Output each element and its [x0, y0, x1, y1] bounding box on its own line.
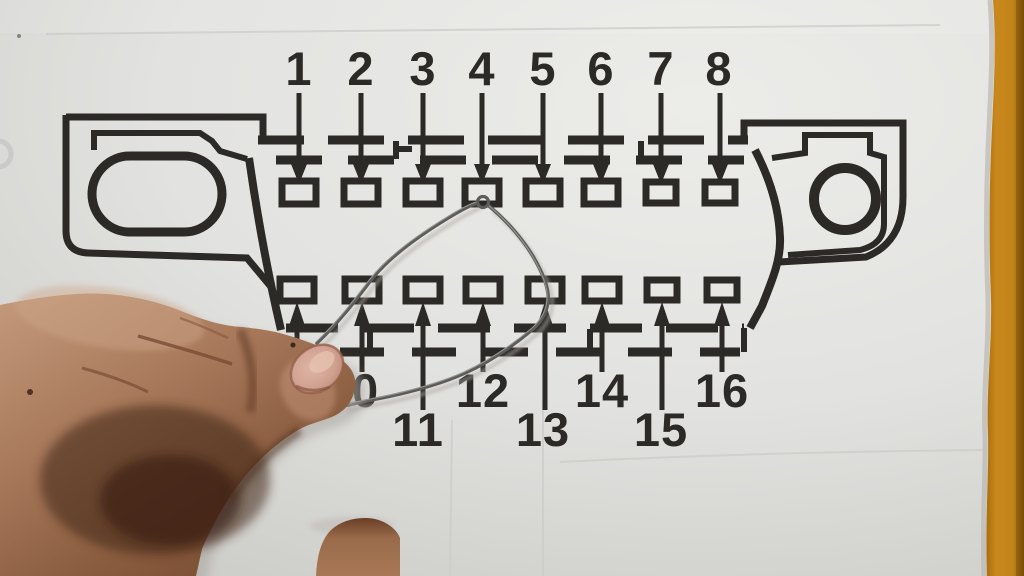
- desk-edge-dark-band: [1016, 0, 1024, 576]
- label-pin-14: 14: [575, 364, 629, 417]
- label-pin-15: 15: [634, 403, 688, 456]
- label-pin-8: 8: [705, 42, 732, 95]
- label-pin-16: 16: [695, 364, 749, 417]
- speck: [17, 34, 21, 38]
- label-pin-1: 1: [285, 42, 312, 95]
- nail-dirt-speck: [291, 343, 296, 348]
- label-pin-11: 11: [392, 403, 444, 456]
- skin-mole: [27, 389, 33, 395]
- label-pin-5: 5: [529, 42, 556, 95]
- label-pin-7: 7: [647, 42, 674, 95]
- label-pin-2: 2: [347, 42, 374, 95]
- desk-surface: [983, 0, 1024, 576]
- label-pin-3: 3: [409, 42, 436, 95]
- scene-canvas: 1 2 3 4 5 6 7 8 10 11 12 13 14 15 16: [0, 0, 1024, 576]
- label-pin-4: 4: [468, 42, 495, 95]
- label-pin-13: 13: [516, 403, 570, 456]
- photo-obd2-pinout: 1 2 3 4 5 6 7 8 10 11 12 13 14 15 16: [0, 0, 1024, 576]
- label-pin-6: 6: [587, 42, 614, 95]
- paper-top-strip: [0, 0, 1024, 33]
- palm-shadow-core: [100, 455, 240, 545]
